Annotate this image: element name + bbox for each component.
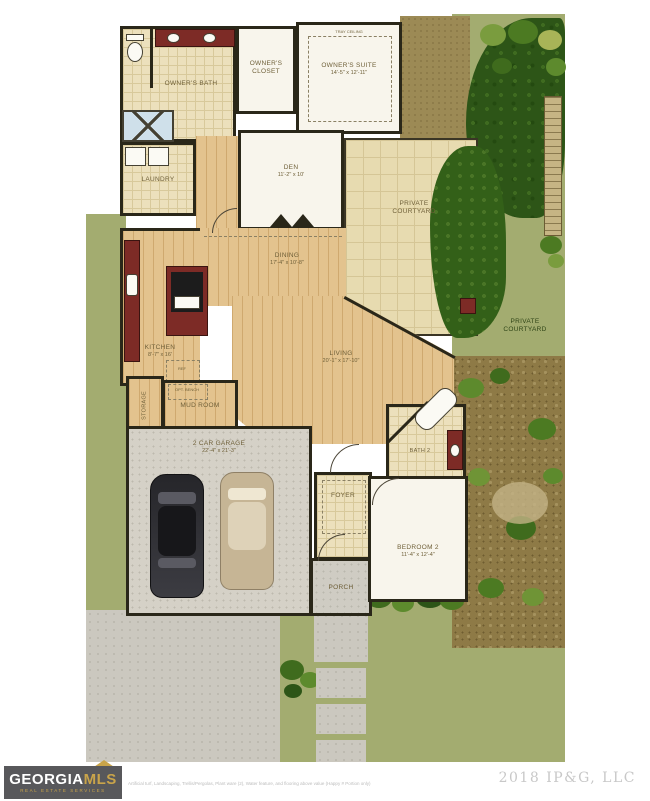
label-mud-room: MUD ROOM <box>172 402 228 410</box>
room-name: DINING <box>275 252 300 259</box>
room-name: 2 CAR GARAGE <box>193 440 245 447</box>
label-owners-closet: OWNER'S CLOSET <box>238 60 294 76</box>
room-dims: 14'-5" x 12'-11" <box>306 70 392 77</box>
room-name: LIVING <box>329 350 352 357</box>
brand-row: GEORGIA MLS <box>9 772 117 787</box>
kitchen-sink-icon <box>126 274 138 296</box>
shrub <box>284 684 302 698</box>
brand-georgia: GEORGIA <box>9 772 83 787</box>
car-dark-rear-window <box>158 558 196 568</box>
label-living: LIVING 20'-1" x 17'-10" <box>298 350 384 365</box>
shrub <box>480 24 506 46</box>
label-den: DEN 11'-2" x 10' <box>246 164 336 179</box>
sink-icon <box>203 33 216 43</box>
room-dims: 8'-7" x 16' <box>130 352 190 359</box>
shrub <box>522 588 544 606</box>
washer-icon <box>125 147 146 166</box>
driveway <box>86 610 280 762</box>
shrub <box>538 30 562 50</box>
shrub <box>492 58 512 74</box>
sand-patch <box>492 482 548 524</box>
label-bath2: BATH 2 <box>398 448 442 455</box>
ref-box <box>166 360 200 382</box>
french-door-icon <box>292 214 314 227</box>
label-bedroom2: BEDROOM 2 11'-4" x 12'-4" <box>374 544 462 559</box>
paver <box>316 740 366 762</box>
grill <box>460 298 476 314</box>
sink-icon <box>167 33 180 43</box>
room-dims: 11'-4" x 12'-4" <box>374 552 462 559</box>
car-dark-roof <box>158 506 196 556</box>
label-owners-suite: OWNER'S SUITE 14'-5" x 12'-11" <box>306 62 392 77</box>
label-porch: PORCH <box>314 584 368 592</box>
paver <box>316 668 366 698</box>
car-dark-windshield <box>158 492 196 504</box>
door-arc <box>330 444 359 473</box>
label-opt-bench: OPT. BENCH <box>168 387 206 392</box>
label-courtyard-side: PRIVATE COURTYARD <box>492 318 558 334</box>
label-ref: REF <box>166 366 198 371</box>
label-storage: STORAGE <box>142 375 149 435</box>
toilet-icon <box>127 42 143 62</box>
shrub <box>490 368 510 384</box>
sink-icon <box>450 444 460 457</box>
brand-subtitle: REAL ESTATE SERVICES <box>20 789 106 794</box>
car-tan-windshield <box>228 488 266 500</box>
room-dims: 17'-4" x 10'-8" <box>238 260 336 267</box>
room-name: OWNER'S SUITE <box>321 62 376 69</box>
label-garage: 2 CAR GARAGE 22'-4" x 21'-3" <box>148 440 290 455</box>
shower-icon <box>122 110 174 142</box>
dryer-icon <box>148 147 169 166</box>
shrub <box>468 468 490 486</box>
shrub <box>548 254 564 268</box>
shrub <box>546 58 566 76</box>
brand-mls: MLS <box>84 772 117 787</box>
footer-disclaimer: Artificial turf, Landscaping, Trellis/Pe… <box>128 781 400 786</box>
toilet-icon <box>126 34 144 41</box>
label-tray-ceiling: TRAY CEILING <box>306 29 392 34</box>
foyer-ceiling-outline <box>322 480 366 534</box>
french-door-icon <box>270 214 292 227</box>
shrub <box>508 20 538 44</box>
garden-trellis <box>544 96 562 236</box>
shrub <box>458 378 484 398</box>
label-dining: DINING 17'-4" x 10'-8" <box>238 252 336 267</box>
shrub <box>540 236 562 254</box>
room-name: KITCHEN <box>145 344 176 351</box>
wall <box>150 26 153 88</box>
room-dims: 22'-4" x 21'-3" <box>148 448 290 455</box>
label-courtyard-main: PRIVATE COURTYARD <box>382 200 446 216</box>
room-name: BEDROOM 2 <box>397 544 439 551</box>
front-walk <box>314 612 368 662</box>
room-name: DEN <box>284 164 299 171</box>
floor-plan-image: OWNER'S BATH OWNER'S CLOSET TRAY CEILING… <box>0 0 650 801</box>
shrub <box>528 418 556 440</box>
paver <box>316 704 366 734</box>
label-foyer: FOYER <box>318 492 368 500</box>
label-owners-bath: OWNER'S BATH <box>158 80 224 88</box>
car-tan-roof <box>228 502 266 550</box>
label-kitchen: KITCHEN 8'-7" x 16' <box>130 344 190 359</box>
footer-copyright: 2018 IP&G, LLC <box>499 770 636 786</box>
ceiling-line <box>204 236 342 237</box>
georgia-mls-logo: GEORGIA MLS REAL ESTATE SERVICES <box>4 766 122 799</box>
shrub <box>478 578 504 598</box>
room-dining <box>198 228 346 306</box>
shrub <box>543 468 563 484</box>
oven-door-icon <box>174 296 200 309</box>
tray-ceiling-outline <box>308 36 392 122</box>
label-laundry: LAUNDRY <box>126 176 190 184</box>
room-dims: 20'-1" x 17'-10" <box>298 358 384 365</box>
room-dims: 11'-2" x 10' <box>246 172 336 179</box>
